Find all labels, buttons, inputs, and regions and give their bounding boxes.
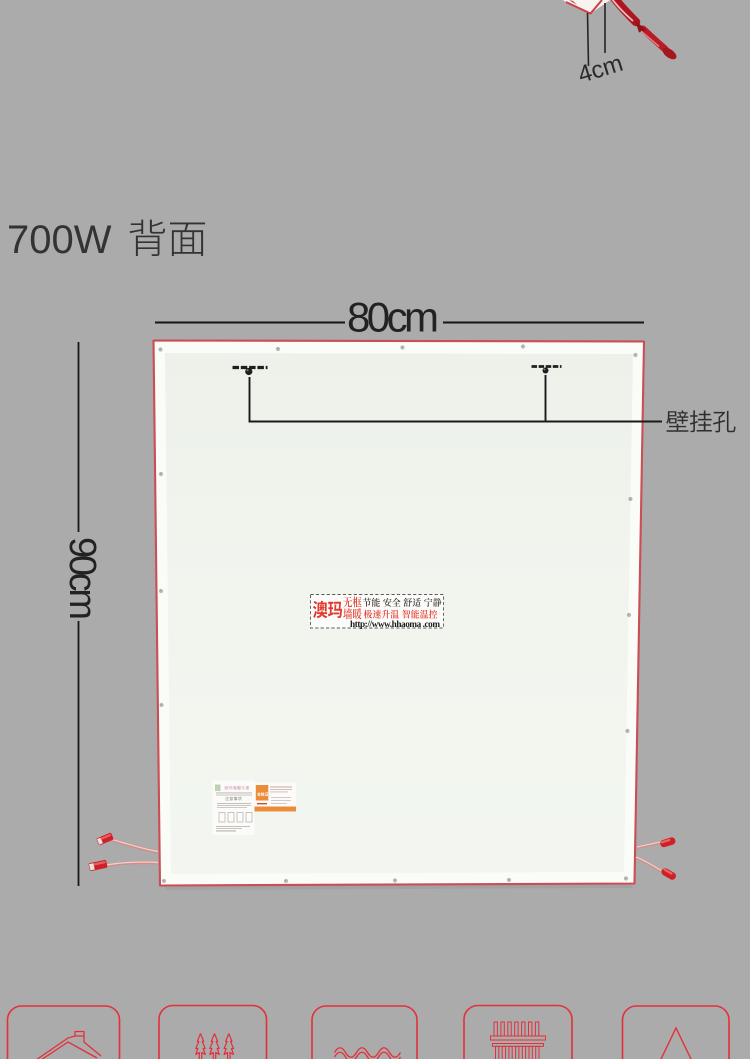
svg-text:90cm: 90cm <box>61 537 103 620</box>
svg-text:80cm: 80cm <box>347 294 439 341</box>
svg-text:4cm: 4cm <box>575 50 626 89</box>
svg-text:700W: 700W <box>7 218 112 262</box>
svg-text:http://www.hhaoma .com: http://www.hhaoma .com <box>350 619 440 629</box>
